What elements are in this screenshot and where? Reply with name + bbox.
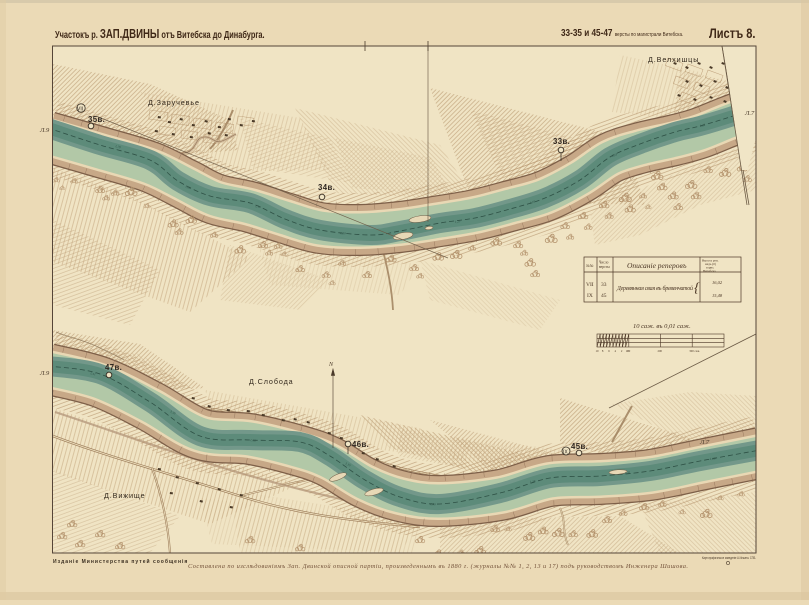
svg-text:Д.Слобода: Д.Слобода: [249, 377, 294, 386]
svg-text:Участокъ р. ЗАП.ДВИНЫ отъ Вите: Участокъ р. ЗАП.ДВИНЫ отъ Витебска до Ди…: [55, 28, 265, 42]
svg-text:100: 100: [626, 349, 631, 353]
svg-text:Витебска: Витебска: [703, 269, 716, 273]
svg-text:IX: IX: [587, 293, 593, 299]
svg-text:300 саж.: 300 саж.: [689, 349, 700, 353]
svg-text:Л.7: Л.7: [744, 110, 755, 117]
svg-text:34в.: 34в.: [318, 183, 335, 192]
svg-text:Л.9: Л.9: [39, 370, 50, 377]
svg-text:45: 45: [601, 293, 607, 299]
svg-text:35в.: 35в.: [88, 115, 105, 124]
svg-text:Л.9: Л.9: [39, 127, 50, 134]
svg-text:Деревянная свая въ бревенчатой: Деревянная свая въ бревенчатой: [616, 285, 693, 292]
svg-text:33: 33: [601, 282, 607, 288]
svg-text:200: 200: [658, 349, 663, 353]
svg-text:10 саж. въ 0,01 саж.: 10 саж. въ 0,01 саж.: [633, 323, 691, 330]
svg-text:Составлена по изслѣдованіямъ З: Составлена по изслѣдованіямъ Зап. Двинск…: [188, 563, 688, 570]
svg-text:45в.: 45в.: [571, 442, 588, 451]
svg-text:47в.: 47в.: [105, 363, 122, 372]
svg-text:Описаніе реперовъ: Описаніе реперовъ: [627, 261, 687, 270]
svg-text:Картографическое заведеніе А.И: Картографическое заведеніе А.Ильина. СПБ…: [702, 556, 756, 560]
svg-text:Д.Заручевье: Д.Заручевье: [148, 98, 200, 107]
svg-text:Изданіе Министерства путей соо: Изданіе Министерства путей сообщенія: [53, 558, 188, 565]
svg-text:{: {: [694, 281, 700, 296]
svg-text:VII: VII: [586, 282, 594, 288]
svg-text:10: 10: [596, 349, 600, 353]
svg-text:46в.: 46в.: [352, 440, 369, 449]
svg-text:№№: №№: [585, 263, 594, 268]
svg-text:Д.Вижище: Д.Вижище: [104, 491, 146, 500]
svg-text:IX: IX: [563, 450, 568, 456]
svg-text:Число: Число: [599, 261, 609, 265]
svg-text:33в.: 33в.: [553, 137, 570, 146]
svg-text:VII: VII: [77, 107, 83, 113]
svg-text:Л.7: Л.7: [699, 439, 710, 446]
svg-text:Листъ 8.: Листъ 8.: [709, 26, 755, 41]
svg-text:версты: версты: [599, 265, 610, 269]
svg-text:Д.Велхишцы: Д.Велхишцы: [648, 55, 699, 64]
